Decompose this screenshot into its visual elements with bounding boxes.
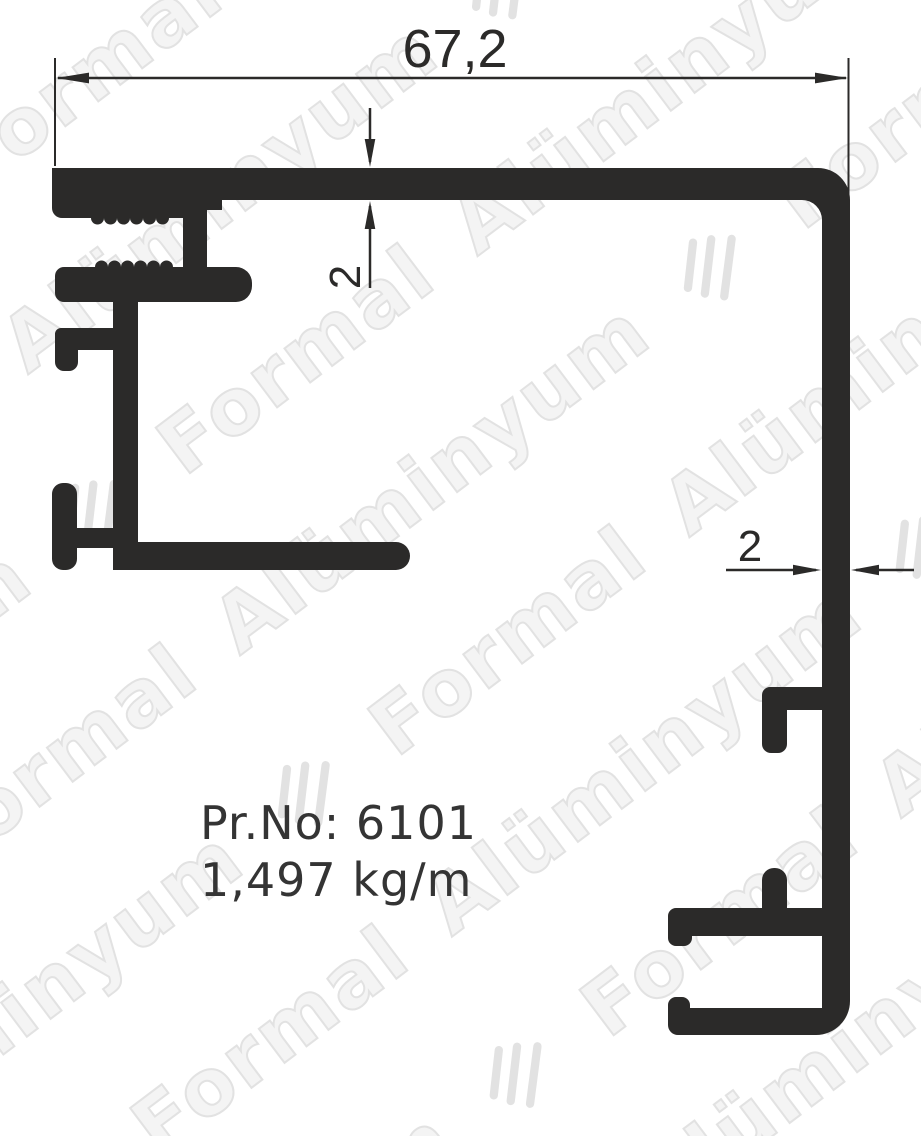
arrowhead-width-left [56,73,89,84]
dim-label-top-thickness: 2 [321,265,370,289]
profile-weight: 1,497 kg/m [200,852,477,909]
right-shelf [668,908,822,946]
profile-annotation: Pr.No: 6101 1,497 kg/m [200,795,477,909]
left-bridge [70,528,120,548]
arrowhead-top2-down [365,139,376,167]
profile-number: Pr.No: 6101 [200,795,477,852]
right-lower-stub [762,868,787,908]
arrowhead-top2-up [365,201,376,229]
dim-label-width: 67,2 [402,19,507,79]
right-upper-hook [762,687,822,753]
profile-drawing: 67,2 2 2 [0,0,921,1136]
glazing-bar-serrated [55,261,252,303]
left-t-stub [52,483,77,570]
arrowhead-right2-out [851,565,879,576]
arrowhead-width-right [815,73,848,84]
bottom-arm [125,542,410,570]
catalog-page: FormalAlüminyumFormalAlüminyumFormalAlüm… [0,0,921,1136]
left-hook [55,328,122,371]
dim-label-right-thickness: 2 [738,522,762,571]
arrowhead-right2-in [793,565,821,576]
